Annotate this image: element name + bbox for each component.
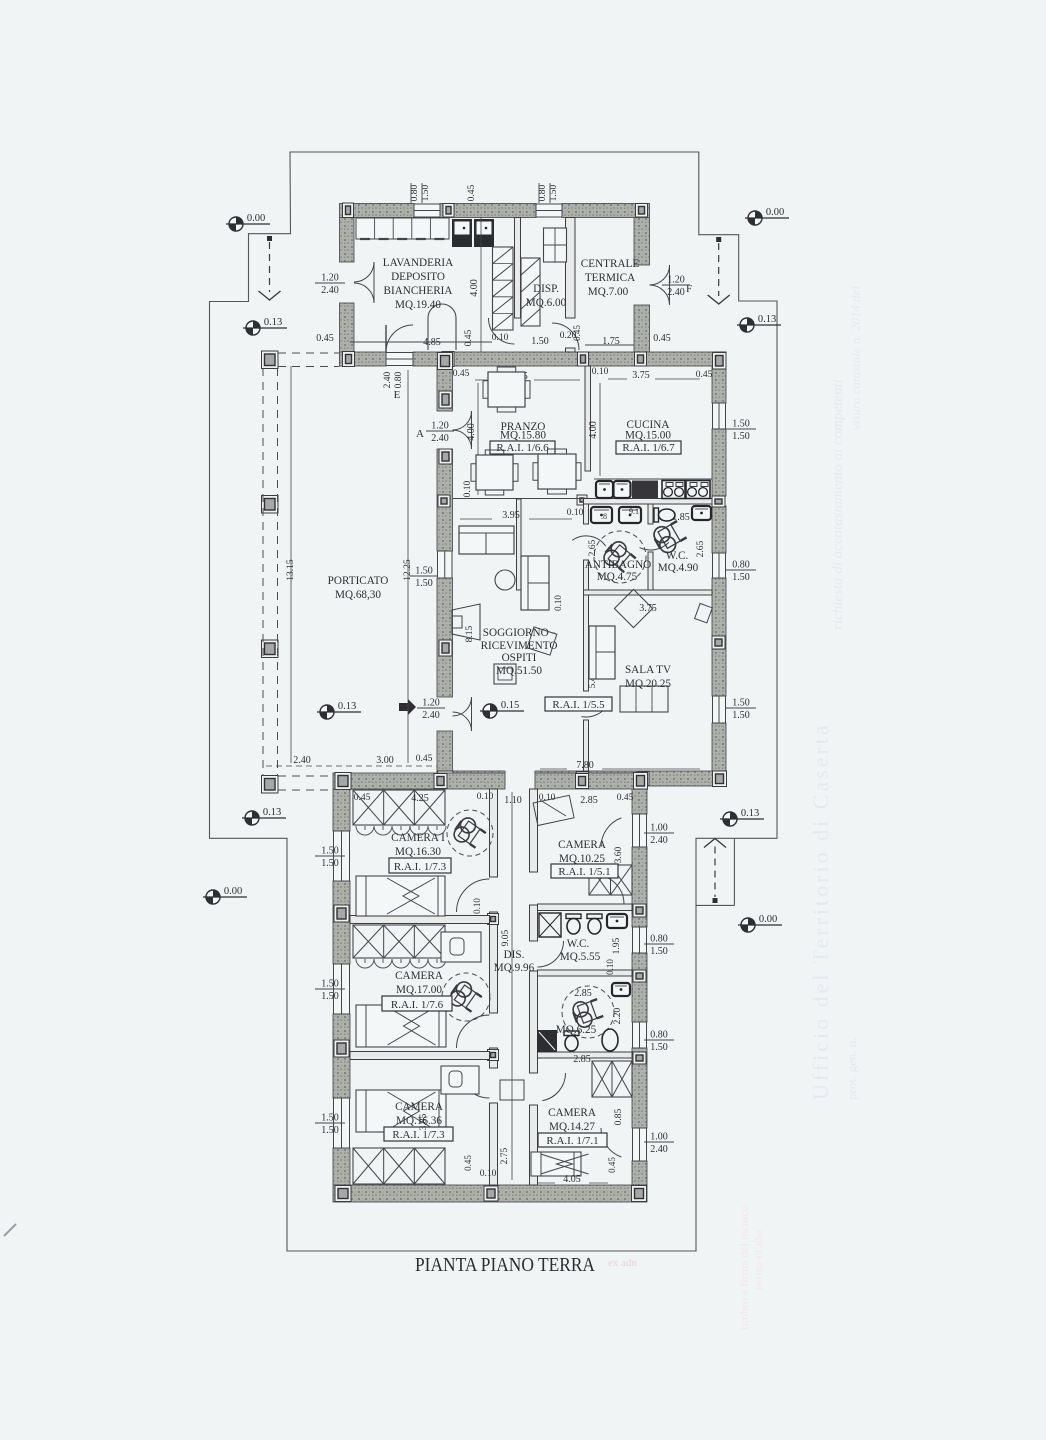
svg-text:0.13: 0.13 bbox=[263, 807, 281, 818]
svg-text:2.65: 2.65 bbox=[588, 539, 598, 556]
svg-text:0.10: 0.10 bbox=[463, 480, 473, 497]
svg-text:1.00: 1.00 bbox=[650, 823, 668, 834]
svg-text:MQ.7.00: MQ.7.00 bbox=[588, 286, 629, 298]
svg-text:0.00: 0.00 bbox=[224, 886, 242, 897]
svg-text:0.80: 0.80 bbox=[650, 934, 668, 945]
svg-text:LAVANDERIA: LAVANDERIA bbox=[383, 257, 453, 269]
svg-text:0.10: 0.10 bbox=[553, 595, 563, 611]
svg-text:0.13: 0.13 bbox=[338, 701, 356, 712]
svg-text:4.00: 4.00 bbox=[466, 423, 477, 441]
svg-text:RICEVIMENTO: RICEVIMENTO bbox=[481, 640, 558, 652]
svg-text:.8: .8 bbox=[601, 512, 607, 521]
svg-text:MQ.19.40: MQ.19.40 bbox=[395, 299, 441, 311]
svg-text:richiesta di accatastamento ai: richiesta di accatastamento ai competent… bbox=[830, 379, 846, 630]
svg-text:DEPOSITO: DEPOSITO bbox=[391, 271, 445, 283]
svg-text:visura catastale n. 2014 del: visura catastale n. 2014 del bbox=[848, 286, 863, 430]
svg-text:Ufficio del Territorio di Case: Ufficio del Territorio di Caserta bbox=[808, 722, 833, 1100]
svg-text:4.00: 4.00 bbox=[588, 421, 599, 439]
svg-text:2.75: 2.75 bbox=[500, 1147, 510, 1164]
svg-text:0.10: 0.10 bbox=[592, 367, 609, 377]
svg-text:MQ.6.25: MQ.6.25 bbox=[556, 1024, 597, 1036]
svg-text:4.00: 4.00 bbox=[469, 279, 480, 297]
svg-text:CENTRALE: CENTRALE bbox=[581, 258, 640, 270]
svg-text:3.00: 3.00 bbox=[376, 755, 394, 766]
svg-text:0.00: 0.00 bbox=[247, 213, 265, 224]
svg-text:MQ.20.25: MQ.20.25 bbox=[625, 678, 671, 690]
svg-text:0.45: 0.45 bbox=[696, 370, 713, 380]
svg-text:4.05: 4.05 bbox=[563, 1174, 581, 1185]
svg-text:0.10: 0.10 bbox=[492, 333, 509, 343]
svg-text:MQ.5.55: MQ.5.55 bbox=[560, 951, 601, 963]
svg-text:TERMICA: TERMICA bbox=[585, 272, 635, 284]
svg-text:0.13: 0.13 bbox=[264, 317, 282, 328]
svg-text:0.45: 0.45 bbox=[453, 369, 470, 379]
svg-text:2.40: 2.40 bbox=[431, 433, 449, 444]
svg-text:0.45: 0.45 bbox=[316, 333, 334, 344]
svg-text:2.20: 2.20 bbox=[613, 1007, 623, 1024]
svg-text:1.50: 1.50 bbox=[321, 991, 339, 1002]
svg-text:1.50: 1.50 bbox=[321, 1125, 339, 1136]
svg-text:7.80: 7.80 bbox=[576, 760, 594, 771]
svg-text:0.45: 0.45 bbox=[607, 1157, 617, 1173]
svg-text:0.10: 0.10 bbox=[539, 793, 556, 803]
svg-text:4.85: 4.85 bbox=[423, 337, 441, 348]
svg-text:2.40: 2.40 bbox=[422, 710, 440, 721]
svg-text:12.25: 12.25 bbox=[403, 559, 413, 581]
svg-text:0.85: 0.85 bbox=[614, 1108, 624, 1125]
svg-text:1.50: 1.50 bbox=[732, 572, 750, 583]
svg-text:3.75: 3.75 bbox=[632, 370, 650, 381]
svg-text:1.50: 1.50 bbox=[531, 336, 549, 347]
svg-text:1.20: 1.20 bbox=[431, 421, 449, 432]
svg-text:1.50: 1.50 bbox=[321, 858, 339, 869]
svg-text:R.A.I. 1/7.3: R.A.I. 1/7.3 bbox=[394, 861, 447, 873]
svg-text:CAMERA: CAMERA bbox=[558, 839, 606, 851]
svg-text:MQ.10.25: MQ.10.25 bbox=[559, 853, 605, 865]
svg-text:1.85: 1.85 bbox=[672, 512, 690, 523]
svg-text:3.95: 3.95 bbox=[502, 510, 520, 521]
svg-text:ANTIBAGNO: ANTIBAGNO bbox=[585, 559, 652, 571]
svg-text:1.50: 1.50 bbox=[321, 846, 339, 857]
svg-text:MQ.17.00: MQ.17.00 bbox=[396, 984, 442, 996]
svg-text:0.45: 0.45 bbox=[467, 184, 477, 201]
svg-text:0.10: 0.10 bbox=[472, 898, 482, 914]
svg-text:1.20: 1.20 bbox=[321, 273, 339, 284]
svg-text:9.05: 9.05 bbox=[501, 929, 511, 946]
svg-text:0.80: 0.80 bbox=[538, 184, 548, 201]
svg-text:R.A.I. 1/7.1: R.A.I. 1/7.1 bbox=[546, 1135, 598, 1147]
svg-text:2.65: 2.65 bbox=[696, 540, 706, 557]
svg-text:PORTICATO: PORTICATO bbox=[328, 575, 389, 587]
svg-text:2.85: 2.85 bbox=[574, 988, 592, 999]
svg-text:MQ.4.75: MQ.4.75 bbox=[597, 571, 638, 583]
svg-text:1.20: 1.20 bbox=[422, 698, 440, 709]
svg-text:0.80: 0.80 bbox=[732, 560, 750, 571]
svg-text:2.40: 2.40 bbox=[667, 287, 685, 298]
svg-text:1.95: 1.95 bbox=[612, 937, 622, 954]
svg-text:1.00: 1.00 bbox=[650, 1132, 668, 1143]
svg-text:timbro e firma del tecnico: timbro e firma del tecnico bbox=[737, 1205, 751, 1330]
svg-text:8.15: 8.15 bbox=[465, 625, 475, 642]
svg-text:0.15: 0.15 bbox=[501, 700, 519, 711]
svg-text:DISP.: DISP. bbox=[533, 283, 559, 295]
svg-text:0.13: 0.13 bbox=[758, 314, 776, 325]
svg-text:0.13: 0.13 bbox=[741, 808, 759, 819]
svg-text:1.50: 1.50 bbox=[415, 578, 433, 589]
svg-text:MQ.4.90: MQ.4.90 bbox=[658, 562, 699, 574]
svg-text:R.A.I. 1/5.5: R.A.I. 1/5.5 bbox=[552, 699, 605, 711]
svg-text:2.40: 2.40 bbox=[293, 755, 311, 766]
svg-text:MQ.51.50: MQ.51.50 bbox=[496, 665, 542, 677]
svg-text:A: A bbox=[416, 428, 424, 440]
svg-text:OSPITI: OSPITI bbox=[502, 652, 537, 664]
svg-text:ex adn: ex adn bbox=[608, 1257, 638, 1269]
svg-text:2.85: 2.85 bbox=[573, 1054, 591, 1065]
svg-text:13.15: 13.15 bbox=[286, 559, 296, 581]
svg-text:W.C.: W.C. bbox=[567, 938, 590, 950]
svg-text:1.50: 1.50 bbox=[732, 698, 750, 709]
svg-text:MQ.16.30: MQ.16.30 bbox=[395, 846, 441, 858]
svg-text:CAMERA: CAMERA bbox=[395, 1101, 443, 1113]
svg-text:2.85: 2.85 bbox=[580, 795, 598, 806]
svg-text:1.50: 1.50 bbox=[421, 184, 431, 201]
svg-text:1.50: 1.50 bbox=[650, 946, 668, 957]
svg-text:0.45: 0.45 bbox=[354, 793, 371, 803]
svg-text:1.50: 1.50 bbox=[732, 710, 750, 721]
svg-text:2.40: 2.40 bbox=[321, 285, 339, 296]
svg-text:1.50: 1.50 bbox=[732, 419, 750, 430]
svg-text:0.10: 0.10 bbox=[605, 959, 615, 975]
svg-text:0.45: 0.45 bbox=[416, 754, 433, 764]
svg-text:2.40: 2.40 bbox=[650, 1144, 668, 1155]
svg-text:CAMERA: CAMERA bbox=[395, 970, 443, 982]
svg-text:0.45: 0.45 bbox=[617, 793, 634, 803]
svg-text:0.00: 0.00 bbox=[759, 914, 777, 925]
svg-text:1.50: 1.50 bbox=[321, 1113, 339, 1124]
svg-text:0.45: 0.45 bbox=[463, 1155, 473, 1171]
svg-text:SOGGIORNO -: SOGGIORNO - bbox=[483, 627, 556, 639]
svg-text:9.1: 9.1 bbox=[629, 507, 639, 516]
svg-text:E: E bbox=[394, 389, 401, 401]
svg-text:DIS.: DIS. bbox=[504, 949, 525, 961]
svg-text:PIANTA PIANO TERRA: PIANTA PIANO TERRA bbox=[415, 1255, 595, 1276]
svg-text:MQ.6.00: MQ.6.00 bbox=[526, 297, 567, 309]
svg-text:MQ.68,30: MQ.68,30 bbox=[335, 589, 381, 601]
svg-text:1.50: 1.50 bbox=[549, 184, 559, 201]
svg-text:0.10: 0.10 bbox=[480, 1169, 497, 1179]
svg-text:2.40: 2.40 bbox=[383, 371, 393, 388]
svg-text:0.80: 0.80 bbox=[410, 184, 420, 201]
svg-text:3.60: 3.60 bbox=[614, 846, 624, 863]
svg-text:R.A.I. 1/6.6: R.A.I. 1/6.6 bbox=[496, 442, 549, 454]
svg-text:1.50: 1.50 bbox=[650, 1042, 668, 1053]
svg-text:1.50: 1.50 bbox=[415, 566, 433, 577]
svg-text:1.10: 1.10 bbox=[504, 795, 522, 806]
svg-text:prot. gen. n.: prot. gen. n. bbox=[844, 1038, 859, 1100]
svg-text:0.80: 0.80 bbox=[650, 1030, 668, 1041]
svg-text:CAMERA I: CAMERA I bbox=[391, 832, 445, 844]
svg-text:0.45: 0.45 bbox=[464, 329, 474, 346]
svg-text:1.50: 1.50 bbox=[732, 431, 750, 442]
svg-text:W.C.: W.C. bbox=[666, 550, 689, 562]
svg-text:1.20: 1.20 bbox=[667, 275, 685, 286]
svg-text:1.50: 1.50 bbox=[321, 979, 339, 990]
svg-text:BIANCHERIA: BIANCHERIA bbox=[384, 285, 453, 297]
svg-text:MQ.9.96: MQ.9.96 bbox=[494, 962, 535, 974]
svg-text:F: F bbox=[686, 283, 692, 295]
svg-text:MQ.15.80: MQ.15.80 bbox=[500, 430, 546, 442]
svg-text:MQ.14.27: MQ.14.27 bbox=[549, 1121, 595, 1133]
svg-text:R.A.I. 1/7.6: R.A.I. 1/7.6 bbox=[391, 999, 444, 1011]
svg-text:0.45: 0.45 bbox=[653, 333, 671, 344]
svg-text:3.85: 3.85 bbox=[419, 1113, 429, 1130]
svg-text:CAMERA: CAMERA bbox=[548, 1107, 596, 1119]
svg-text:0.00: 0.00 bbox=[766, 207, 784, 218]
svg-text:iscritto all albo: iscritto all albo bbox=[754, 1230, 765, 1290]
svg-text:0.10: 0.10 bbox=[567, 508, 584, 518]
svg-text:R.A.I. 1/5.1: R.A.I. 1/5.1 bbox=[558, 866, 610, 878]
svg-text:MQ.15.00: MQ.15.00 bbox=[625, 430, 671, 442]
svg-text:R.A.I. 1/6.7: R.A.I. 1/6.7 bbox=[622, 442, 675, 454]
svg-text:0.45: 0.45 bbox=[572, 325, 582, 341]
svg-text:2.40: 2.40 bbox=[650, 835, 668, 846]
svg-text:4.25: 4.25 bbox=[411, 793, 429, 804]
svg-text:0.80: 0.80 bbox=[394, 371, 404, 388]
svg-text:0.10: 0.10 bbox=[477, 792, 494, 802]
svg-text:SALA TV: SALA TV bbox=[625, 664, 671, 676]
